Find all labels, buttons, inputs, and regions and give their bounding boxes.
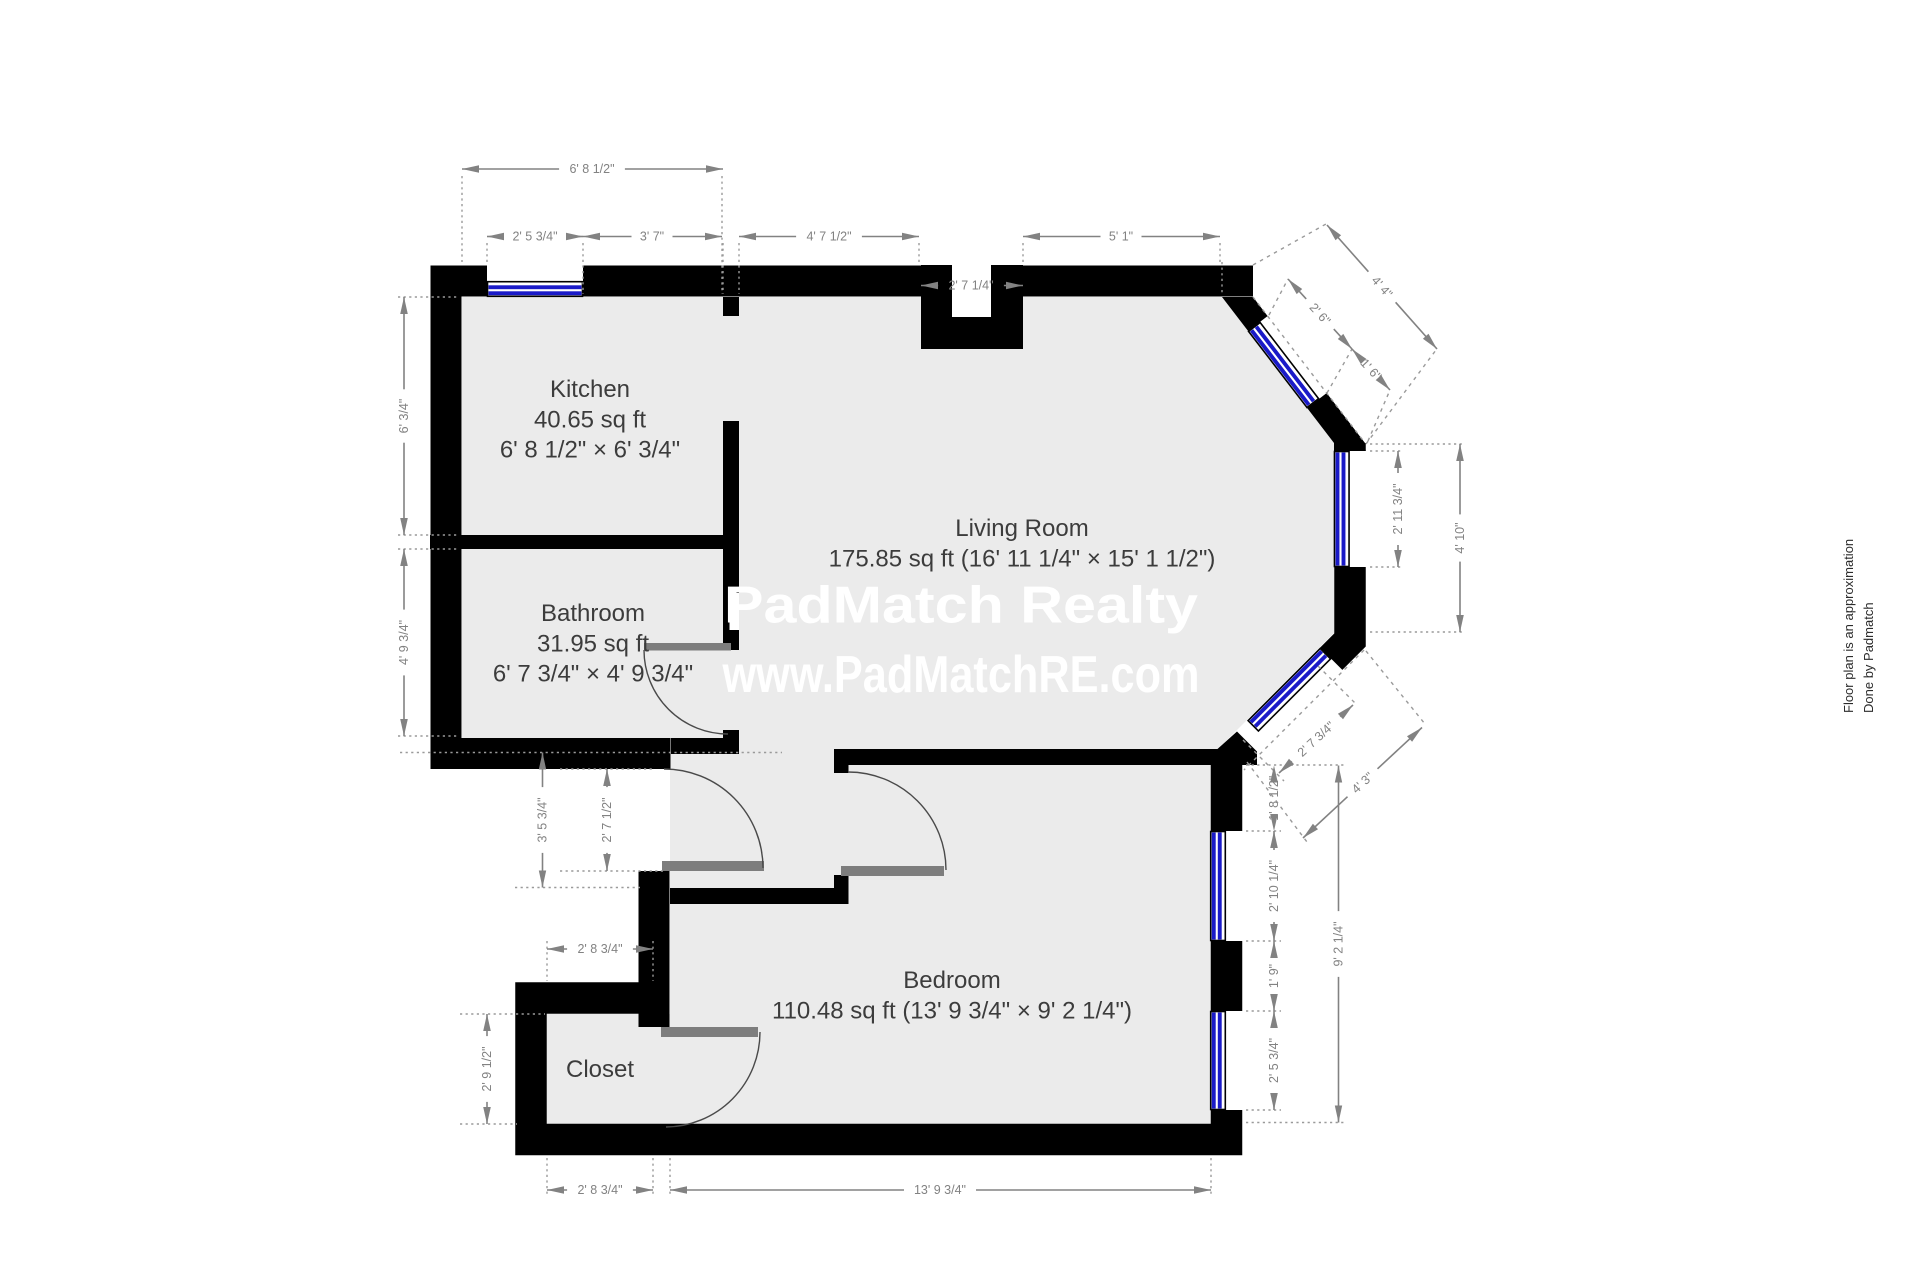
svg-text:6' 8 1/2" × 6' 3/4": 6' 8 1/2" × 6' 3/4" — [500, 437, 680, 464]
svg-text:Kitchen: Kitchen — [550, 376, 630, 403]
svg-text:9' 2 1/4": 9' 2 1/4" — [1332, 921, 1346, 966]
svg-text:2' 7 1/2": 2' 7 1/2" — [600, 797, 614, 842]
svg-text:6' 7 3/4" × 4' 9 3/4": 6' 7 3/4" × 4' 9 3/4" — [493, 661, 693, 688]
svg-text:www.PadMatchRE.com: www.PadMatchRE.com — [722, 646, 1200, 704]
svg-text:Bedroom: Bedroom — [903, 967, 1000, 994]
svg-text:4' 9 3/4": 4' 9 3/4" — [397, 620, 411, 665]
svg-text:2' 10 1/4": 2' 10 1/4" — [1267, 860, 1281, 912]
svg-text:4' 7 1/2": 4' 7 1/2" — [806, 230, 851, 244]
svg-text:Closet: Closet — [566, 1056, 634, 1083]
svg-text:13' 9 3/4": 13' 9 3/4" — [914, 1183, 966, 1197]
svg-text:Bathroom: Bathroom — [541, 600, 645, 627]
svg-text:2' 8 3/4": 2' 8 3/4" — [577, 1183, 622, 1197]
svg-text:2' 7 1/4": 2' 7 1/4" — [948, 279, 993, 293]
svg-text:2' 11 3/4": 2' 11 3/4" — [1391, 483, 1405, 534]
svg-text:2' 9 1/2": 2' 9 1/2" — [480, 1046, 494, 1091]
svg-text:6' 8 1/2": 6' 8 1/2" — [569, 162, 614, 176]
svg-text:Done by Padmatch: Done by Padmatch — [1861, 602, 1876, 713]
svg-text:40.65 sq ft: 40.65 sq ft — [534, 406, 646, 433]
svg-text:2' 5 3/4": 2' 5 3/4" — [1267, 1038, 1281, 1083]
svg-text:2' 5 3/4": 2' 5 3/4" — [512, 230, 557, 244]
svg-text:Living Room: Living Room — [955, 515, 1088, 542]
svg-text:31.95 sq ft: 31.95 sq ft — [537, 630, 649, 657]
svg-text:3' 7": 3' 7" — [640, 230, 664, 244]
svg-text:2' 8 3/4": 2' 8 3/4" — [577, 942, 622, 956]
svg-text:1' 8 1/2": 1' 8 1/2" — [1267, 776, 1281, 821]
svg-text:6' 3/4": 6' 3/4" — [397, 399, 411, 434]
svg-text:1' 9": 1' 9" — [1267, 964, 1281, 988]
svg-text:3' 5 3/4": 3' 5 3/4" — [536, 797, 550, 842]
svg-text:175.85 sq ft (16' 11 1/4" × 15: 175.85 sq ft (16' 11 1/4" × 15' 1 1/2") — [829, 545, 1216, 572]
svg-text:Floor plan is an approximation: Floor plan is an approximation — [1841, 539, 1856, 713]
svg-text:5' 1": 5' 1" — [1109, 230, 1133, 244]
svg-text:4' 10": 4' 10" — [1453, 522, 1467, 553]
svg-text:PadMatch Realty: PadMatch Realty — [724, 577, 1198, 635]
svg-text:110.48 sq ft (13' 9 3/4" × 9': 110.48 sq ft (13' 9 3/4" × 9' 2 1/4") — [772, 997, 1132, 1024]
